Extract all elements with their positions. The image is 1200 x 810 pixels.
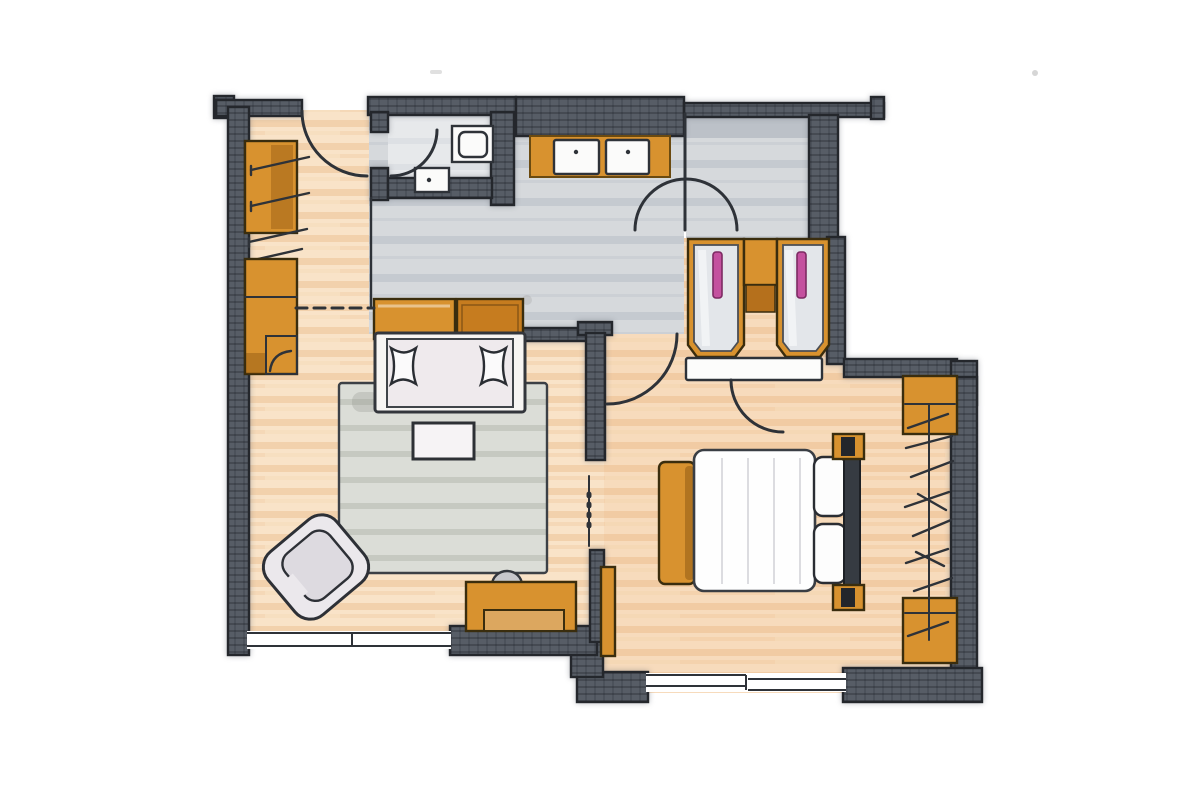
- daybed-cushion-left: [391, 348, 416, 384]
- faucet-icon: [626, 150, 630, 154]
- floor-plan-scan: [0, 0, 1200, 810]
- wall-center-stub-upper: [586, 333, 605, 460]
- wall-top-right-tip: [871, 97, 884, 119]
- daybed-cushion-right: [481, 348, 506, 384]
- scan-smudge-dot: [1032, 70, 1038, 76]
- headboard: [844, 446, 860, 608]
- duvet: [694, 450, 815, 591]
- dresser: [245, 259, 297, 374]
- shelf-niche: [744, 239, 777, 312]
- daybed: [375, 333, 525, 412]
- faucet-icon: [574, 150, 578, 154]
- scan-smudge-dash: [430, 70, 442, 74]
- faucet-icon: [427, 178, 431, 182]
- wall-top-right: [684, 103, 884, 117]
- dresser-shading: [246, 353, 265, 374]
- vanity-sink-left: [554, 140, 599, 174]
- desk-drawer: [484, 610, 564, 631]
- pillow: [814, 524, 846, 583]
- hall-bulkhead-band: [685, 117, 809, 138]
- vanity: [530, 136, 670, 177]
- wall-top-vanity: [516, 97, 684, 136]
- desk: [466, 582, 576, 631]
- bedroom-window: [646, 673, 846, 692]
- tall-wardrobe-right: [777, 239, 829, 357]
- wall-right-column-upper: [809, 115, 838, 240]
- wall-bedroom-south-east: [843, 668, 982, 702]
- threshold-band: [686, 358, 822, 380]
- wall-wc-left-upper: [371, 112, 388, 132]
- bedpost-top-core: [841, 437, 855, 456]
- vanity-sink-right: [606, 140, 649, 174]
- side-cabinet: [601, 567, 615, 656]
- hand-basin: [415, 168, 449, 192]
- coffee-table: [413, 423, 474, 459]
- pillow: [814, 457, 846, 516]
- hall-wardrobes: [686, 239, 829, 380]
- tall-wardrobe-left: [688, 239, 744, 357]
- wardrobe-handle: [713, 252, 722, 298]
- wardrobe-shading: [271, 145, 293, 229]
- wardrobe-handle: [797, 252, 806, 298]
- bedpost-bottom-core: [841, 588, 855, 607]
- foot-bench-shading: [685, 466, 694, 580]
- floor-plan-canvas: [0, 0, 1200, 810]
- wall-wc-left-lower: [371, 168, 388, 200]
- wall-wc-right: [491, 112, 514, 205]
- hall-tile-floor-right: [686, 136, 810, 238]
- wall-bedroom-north: [844, 359, 957, 377]
- toilet: [452, 126, 493, 162]
- living-window: [247, 631, 451, 649]
